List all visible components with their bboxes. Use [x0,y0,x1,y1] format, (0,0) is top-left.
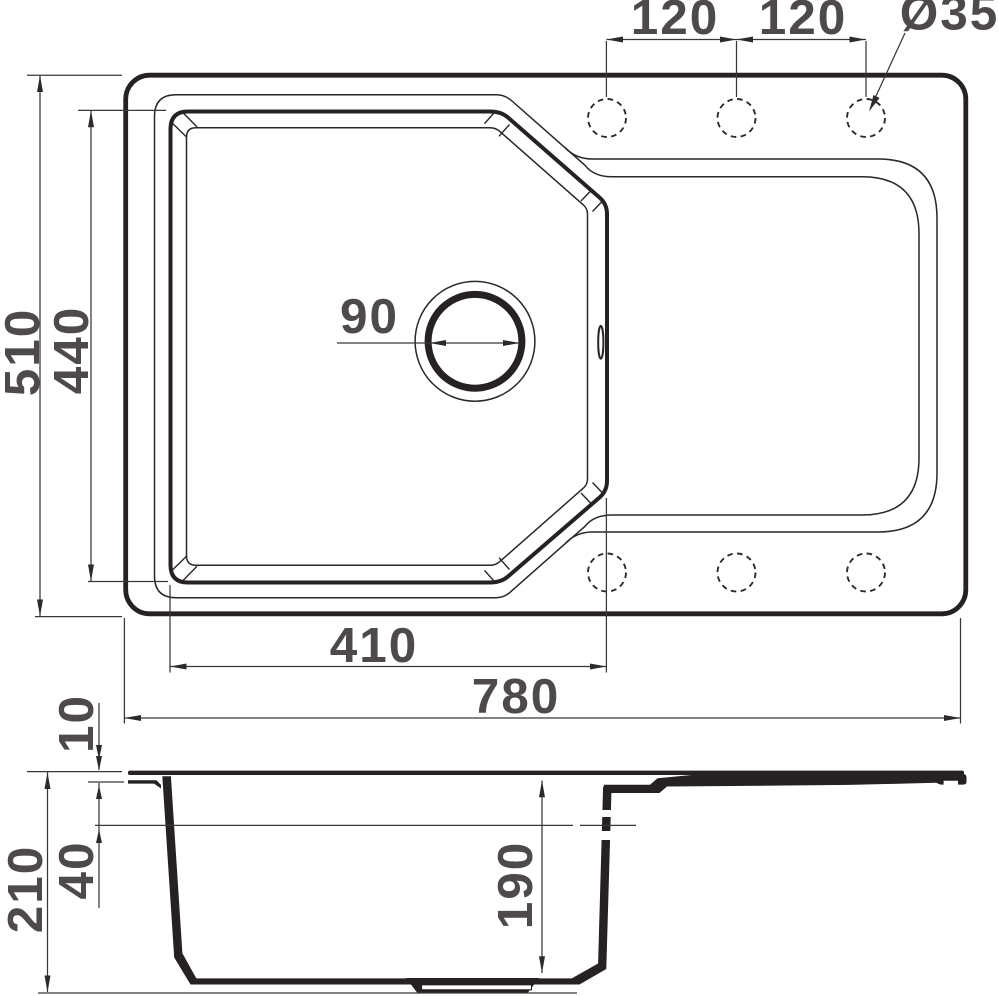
svg-text:120: 120 [759,0,848,45]
svg-text:210: 210 [0,845,53,934]
svg-text:120: 120 [631,0,720,45]
svg-text:440: 440 [44,306,99,395]
svg-text:780: 780 [472,669,561,724]
svg-text:190: 190 [488,841,543,930]
svg-text:410: 410 [330,618,419,673]
svg-text:90: 90 [340,289,399,344]
svg-text:10: 10 [49,694,104,753]
svg-text:Ø35: Ø35 [900,0,998,41]
svg-text:510: 510 [0,308,50,397]
svg-text:40: 40 [49,840,104,899]
